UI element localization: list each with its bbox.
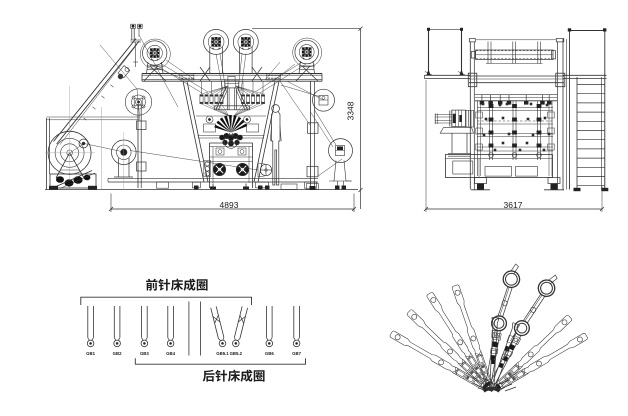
svg-text:GB1: GB1 bbox=[86, 351, 95, 356]
svg-text:GB5.1: GB5.1 bbox=[216, 351, 229, 356]
svg-text:GB3: GB3 bbox=[140, 351, 149, 356]
svg-text:GB2: GB2 bbox=[113, 351, 122, 356]
svg-text:GB6: GB6 bbox=[265, 351, 274, 356]
svg-text:GB5.2: GB5.2 bbox=[230, 351, 243, 356]
svg-text:3617: 3617 bbox=[504, 200, 523, 210]
svg-text:GB4: GB4 bbox=[166, 351, 175, 356]
svg-text:GB7: GB7 bbox=[292, 351, 301, 356]
svg-text:3348: 3348 bbox=[346, 101, 356, 120]
svg-text:4893: 4893 bbox=[220, 200, 239, 210]
